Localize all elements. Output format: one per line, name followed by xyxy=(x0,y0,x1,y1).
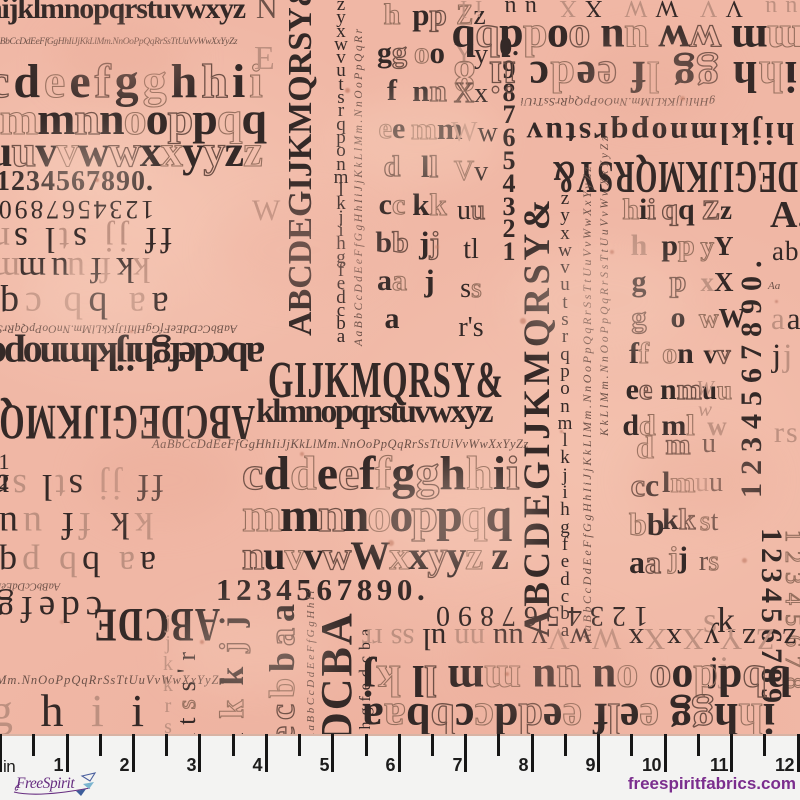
svg-text:FreeSpirit: FreeSpirit xyxy=(15,775,75,792)
